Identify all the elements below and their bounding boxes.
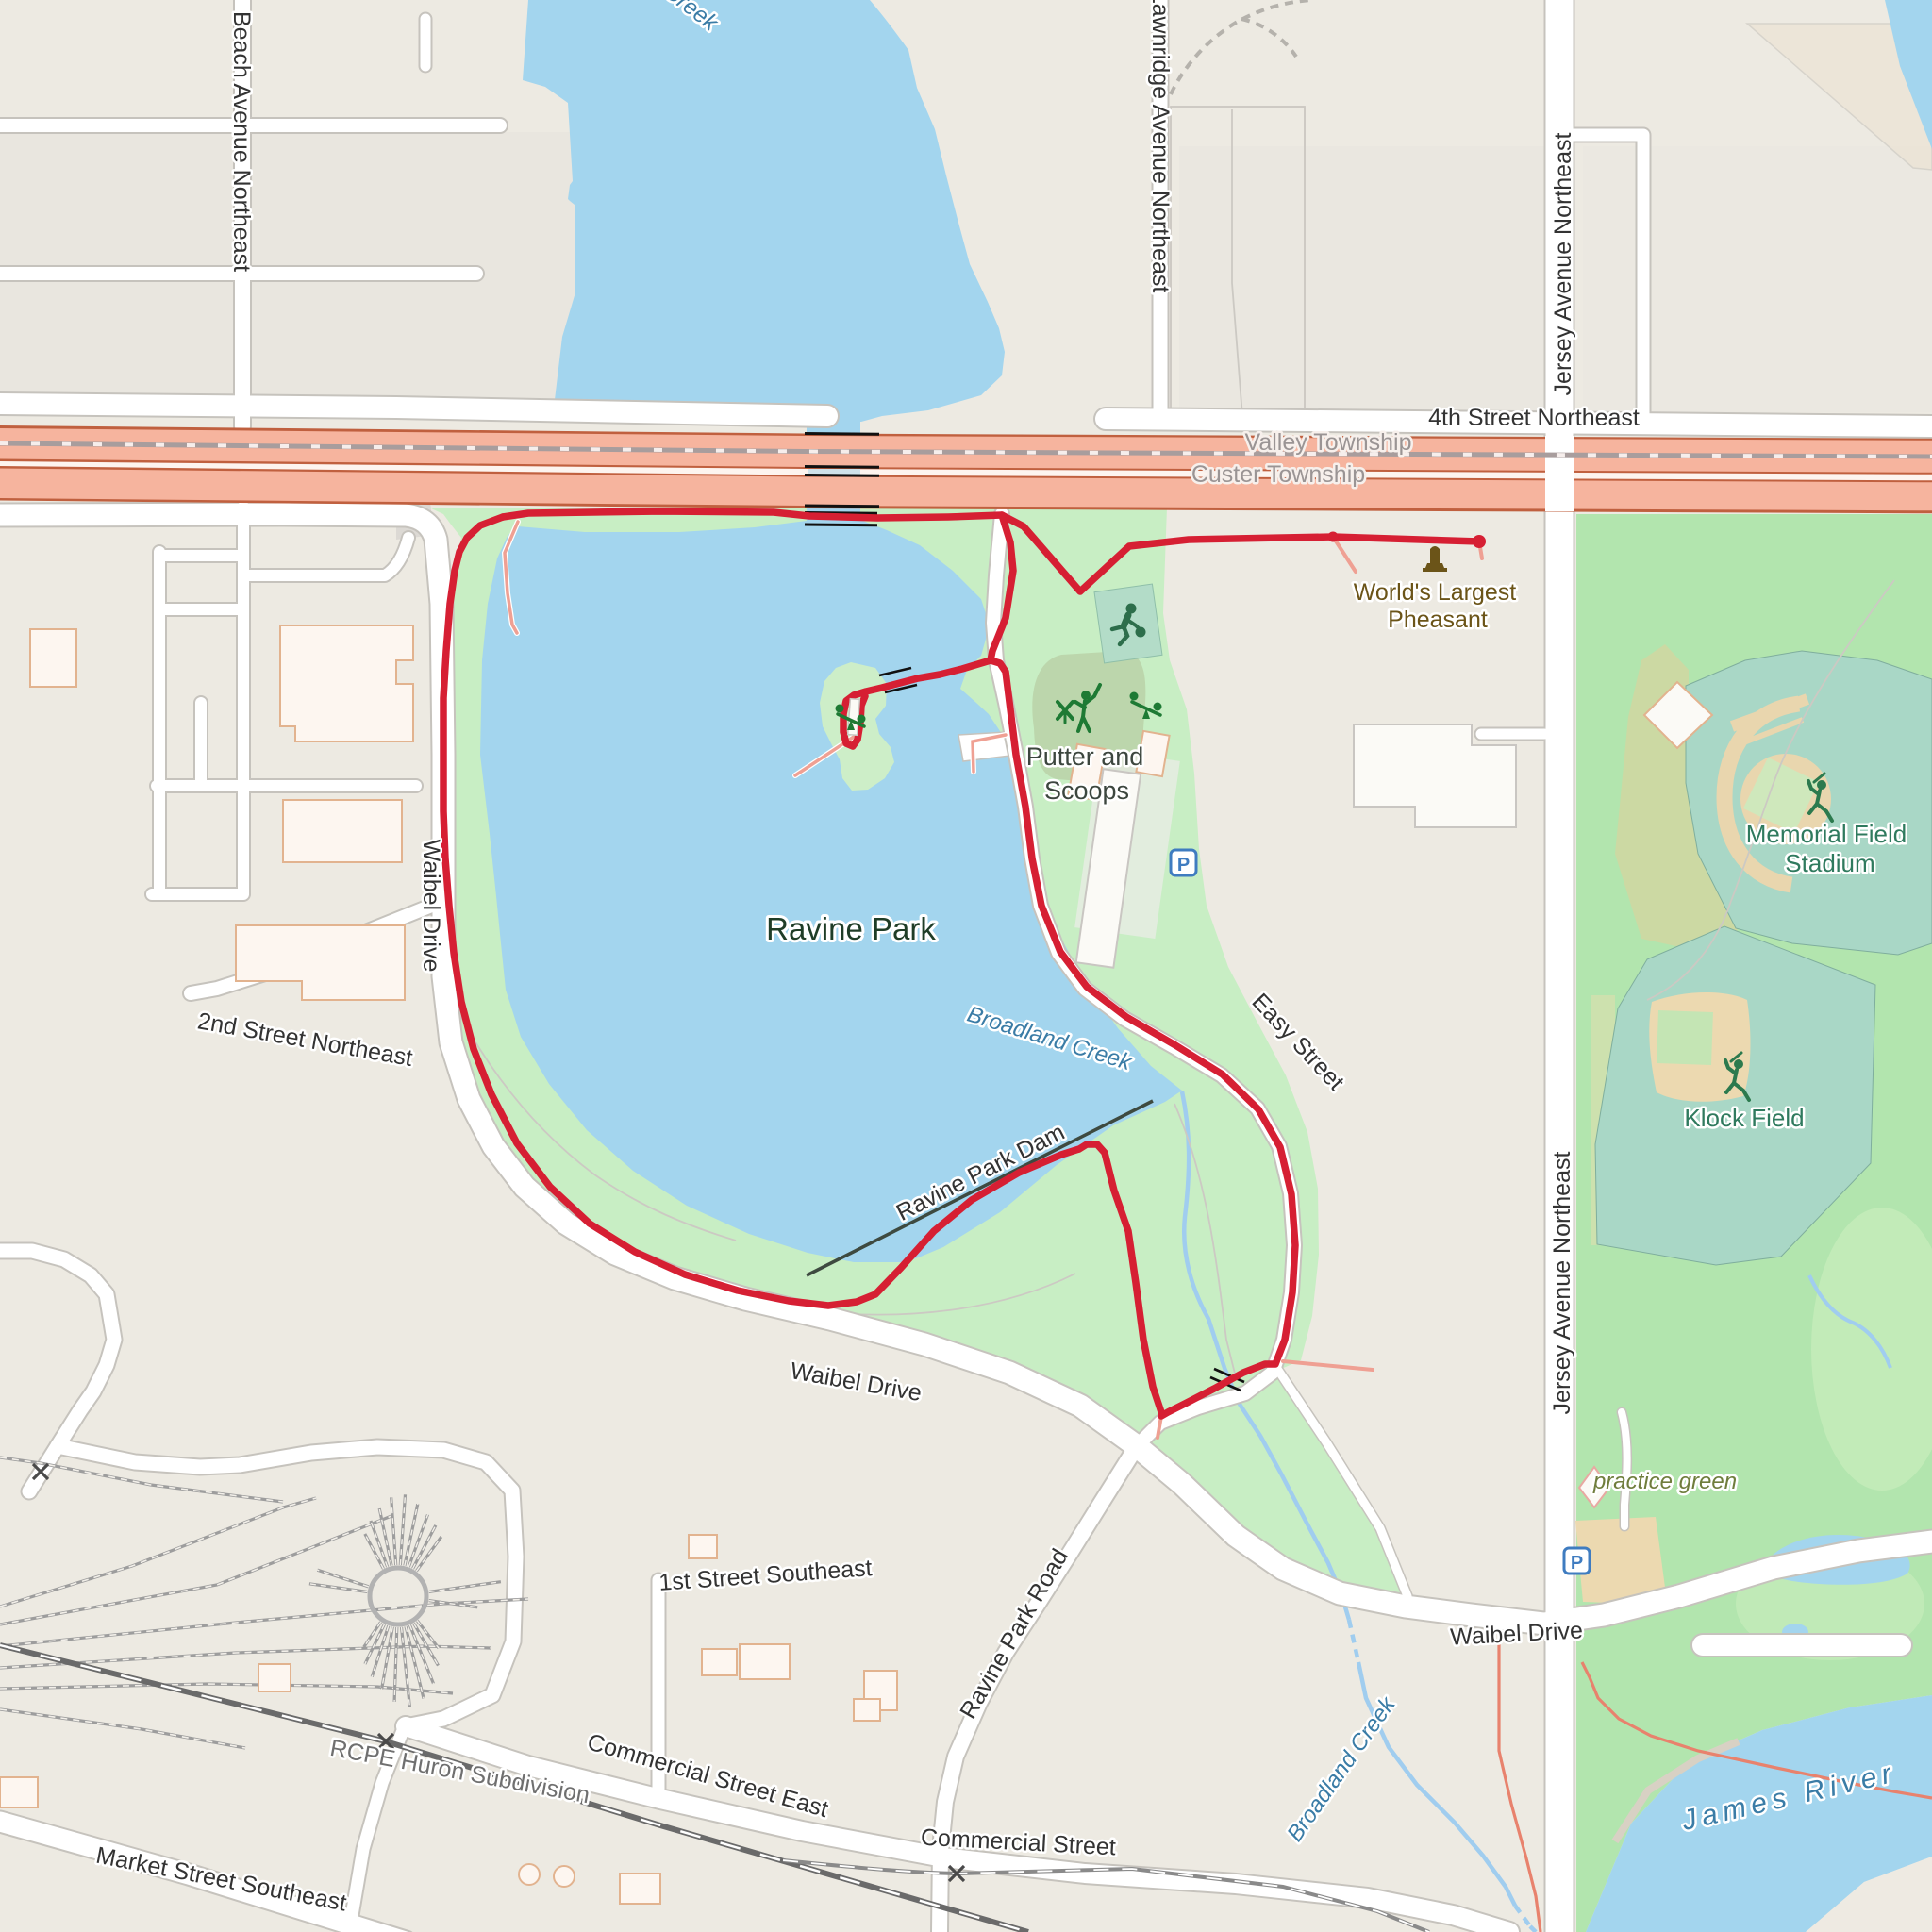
svg-text:Custer Township: Custer Township xyxy=(1191,461,1365,488)
svg-text:Jersey Avenue Northeast: Jersey Avenue Northeast xyxy=(1549,1152,1575,1415)
svg-text:4th Street Northeast: 4th Street Northeast xyxy=(1428,405,1640,431)
svg-text:World's Largest: World's Largest xyxy=(1354,579,1516,606)
svg-text:Putter and: Putter and xyxy=(1026,742,1144,771)
svg-text:P: P xyxy=(1571,1553,1583,1574)
svg-text:practice green: practice green xyxy=(1592,1469,1737,1494)
svg-text:Jersey Avenue Northeast: Jersey Avenue Northeast xyxy=(1550,133,1576,396)
svg-text:Ravine Park: Ravine Park xyxy=(766,911,936,946)
svg-text:Waibel Drive: Waibel Drive xyxy=(418,840,444,973)
svg-text:Beach Avenue Northeast: Beach Avenue Northeast xyxy=(228,11,255,272)
svg-text:Memorial Field: Memorial Field xyxy=(1746,820,1907,848)
svg-text:Klock Field: Klock Field xyxy=(1684,1104,1804,1132)
svg-text:Valley Township: Valley Township xyxy=(1245,429,1412,456)
svg-text:Lawnridge Avenue Northeast: Lawnridge Avenue Northeast xyxy=(1147,0,1174,292)
svg-text:P: P xyxy=(1177,855,1190,875)
svg-text:Scoops: Scoops xyxy=(1044,776,1129,805)
svg-text:Stadium: Stadium xyxy=(1785,849,1874,877)
svg-text:Pheasant: Pheasant xyxy=(1388,607,1488,633)
